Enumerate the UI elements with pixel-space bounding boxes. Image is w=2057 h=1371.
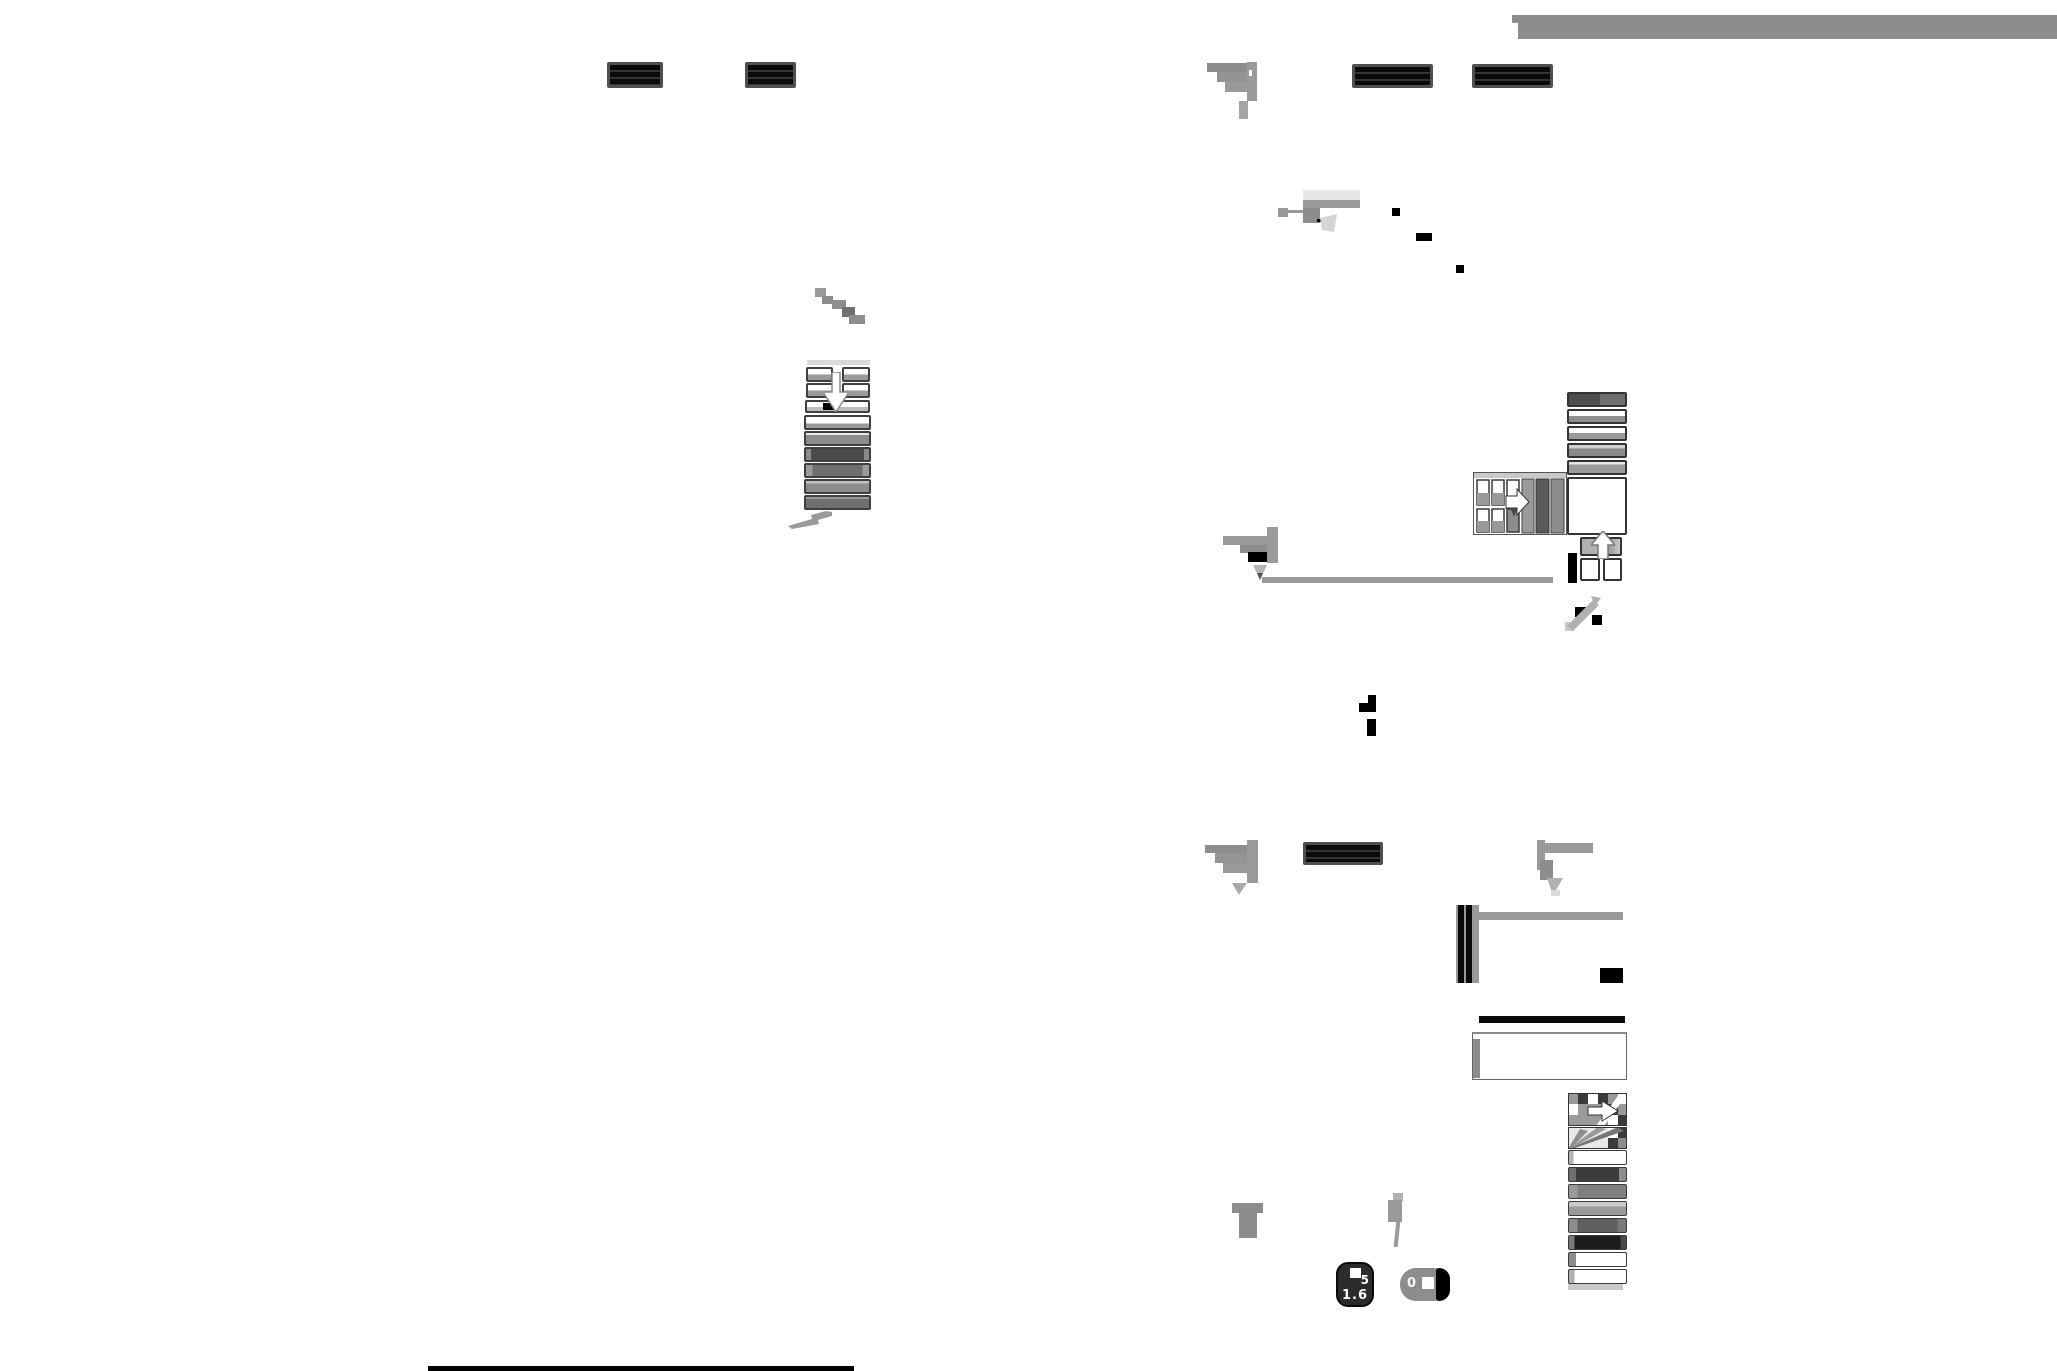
flow-row — [804, 415, 871, 430]
wide-box — [1567, 392, 1627, 407]
descending-steps-icon — [813, 286, 867, 328]
layer-row — [1568, 1150, 1627, 1165]
redacted-text-bar — [607, 62, 663, 88]
layer-row — [1568, 1184, 1627, 1199]
panel-left-strip — [1473, 1039, 1480, 1078]
flow-row — [804, 463, 871, 478]
redacted-text-bar — [1303, 842, 1383, 865]
header-gray-bar — [1512, 15, 2057, 39]
black-bar — [1458, 905, 1464, 983]
lens-top-value: 5 — [1361, 1273, 1369, 1287]
handwriting-scribble-icon — [1221, 525, 1279, 583]
redacted-text-bar — [1352, 64, 1433, 88]
wand-tail — [1394, 1221, 1401, 1247]
cutoff-box-border — [428, 1366, 854, 1371]
handwriting-scribble-icon — [1205, 62, 1258, 119]
redacted-text-bar — [745, 62, 796, 88]
corner-mark — [1359, 703, 1376, 712]
wand-shape — [1388, 1193, 1408, 1248]
lens-window — [1350, 1268, 1361, 1278]
mini-square — [1551, 890, 1560, 896]
lens-side-icon: 0 — [1400, 1268, 1450, 1301]
divider-line — [1479, 1016, 1625, 1023]
diagram-output-box — [1567, 477, 1627, 535]
io-box — [1580, 558, 1600, 581]
flow-row — [804, 431, 871, 446]
t-shape-mark — [1239, 1213, 1257, 1238]
lens-bottom-value: 1.6 — [1342, 1288, 1368, 1303]
layer-row — [1568, 1252, 1627, 1267]
document-canvas: 5 1.6 0 — [0, 0, 2057, 1371]
flow-row — [804, 447, 871, 462]
layer-row — [1568, 1269, 1627, 1284]
mark-dot — [1392, 208, 1400, 216]
t-shape-mark — [1232, 1203, 1263, 1213]
black-tick-bar — [1568, 553, 1577, 583]
wide-box — [1567, 443, 1627, 458]
layer-row-stack — [1568, 1150, 1627, 1286]
strike-arrow-mark — [1565, 596, 1605, 632]
swoosh-arrow-icon — [788, 510, 840, 530]
wide-box — [1567, 409, 1627, 424]
layer-row — [1568, 1167, 1627, 1182]
layer-row — [1568, 1235, 1627, 1250]
stack-footer-bar — [1568, 1284, 1623, 1290]
black-bar — [1466, 905, 1472, 983]
wand-body — [1388, 1200, 1402, 1222]
flow-row — [804, 495, 871, 510]
mark-dot — [1456, 265, 1464, 273]
up-arrow-icon — [1591, 531, 1615, 559]
black-chip — [1600, 968, 1623, 983]
wide-box-stack — [1567, 392, 1627, 477]
stack-header-bar — [807, 360, 870, 365]
wide-box — [1567, 426, 1627, 441]
lens-cap — [1436, 1268, 1450, 1301]
wide-box — [1567, 460, 1627, 475]
mark-dot — [1416, 233, 1432, 241]
fan-pattern-block — [1568, 1127, 1627, 1149]
pointer-figure-icon — [1278, 190, 1360, 235]
baseline-bar — [1262, 577, 1553, 583]
double-black-bars — [1456, 905, 1479, 983]
module-diagram — [1473, 472, 1567, 535]
empty-panel-box — [1472, 1032, 1627, 1080]
lens-highlight — [1422, 1277, 1434, 1289]
connector-rail — [1478, 912, 1623, 920]
layer-row — [1568, 1218, 1627, 1233]
flow-row-list — [804, 415, 871, 511]
redacted-text-bar — [1472, 64, 1553, 88]
io-box — [1603, 558, 1622, 581]
handwriting-scribble-icon — [1203, 838, 1259, 896]
flow-row — [804, 479, 871, 494]
checker-pattern-block — [1568, 1093, 1627, 1126]
lens-side-value: 0 — [1407, 1276, 1416, 1291]
layer-row — [1568, 1201, 1627, 1216]
down-arrow-icon — [823, 372, 849, 412]
lens-front-icon: 5 1.6 — [1336, 1262, 1374, 1307]
handwriting-scribble-icon — [1535, 838, 1595, 896]
bar-mark — [1367, 719, 1376, 736]
